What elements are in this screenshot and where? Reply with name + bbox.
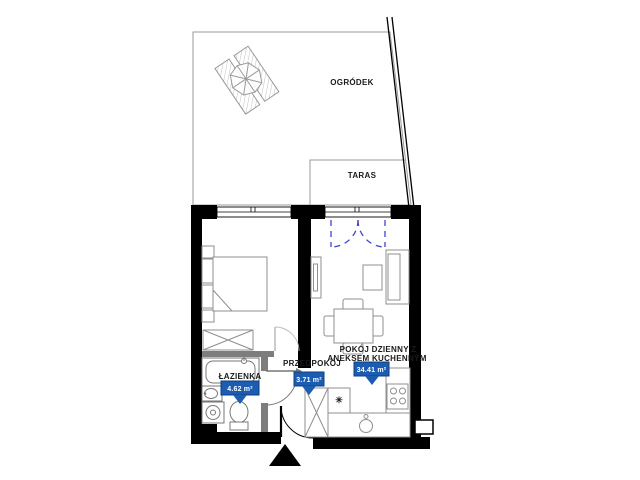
pillow	[202, 259, 213, 283]
bedroom-furniture	[202, 246, 267, 350]
coffee-table	[363, 265, 382, 290]
bedroom-wardrobe	[203, 330, 253, 350]
hallway-wardrobe	[305, 388, 328, 437]
double-bed	[213, 257, 267, 311]
fridge-snowflake-icon: ✳	[335, 395, 343, 405]
dining-table	[334, 309, 373, 343]
washbasin	[202, 386, 222, 401]
bathroom-fixtures	[202, 356, 259, 437]
garden-area: OGRÓDEK TARAS	[193, 17, 414, 208]
wall-right	[409, 205, 421, 449]
installation-shaft	[202, 424, 217, 437]
bathroom-area-value: 4.62 m²	[227, 386, 253, 393]
sun-loungers-with-umbrella	[215, 46, 279, 114]
bedroom-window	[217, 207, 291, 217]
living-room-furniture	[311, 250, 409, 354]
living-room-area-badge: 34.41 m²	[354, 362, 389, 385]
chair	[343, 299, 363, 310]
tv-stand	[311, 257, 321, 298]
nightstand	[202, 310, 214, 322]
living-room-area-value: 34.41 m²	[357, 367, 387, 374]
terrace-outline	[310, 160, 406, 205]
living-room-label-line1: POKÓJ DZIENNY Z	[340, 345, 417, 354]
wall-bottom-right	[313, 437, 430, 449]
toilet	[230, 402, 248, 431]
bathroom-area-badge: 4.62 m²	[221, 381, 259, 404]
garden-label: OGRÓDEK	[330, 78, 373, 87]
bedroom-door	[275, 327, 299, 351]
fridge: ✳	[328, 388, 350, 413]
balcony-door-swing-dashed	[331, 220, 385, 247]
garden-outline	[193, 32, 411, 205]
stove	[387, 384, 408, 409]
entrance-marker-triangle	[269, 444, 301, 466]
terrace-label: TARAS	[348, 171, 377, 180]
hallway-area-value: 3.71 m²	[296, 377, 322, 384]
balcony-door-window	[325, 207, 391, 217]
wall-left	[191, 205, 202, 444]
washing-machine	[202, 402, 224, 423]
boundary-fence-line	[387, 17, 409, 208]
bathroom-label: ŁAZIENKA	[219, 372, 262, 381]
boundary-fence-line	[392, 17, 414, 208]
floor-plan: OGRÓDEK TARAS	[0, 0, 640, 480]
sofa	[386, 250, 409, 304]
chair	[324, 316, 335, 336]
wall-bedroom-living-divider	[298, 205, 311, 368]
floor-plan-canvas: OGRÓDEK TARAS	[0, 0, 640, 480]
nightstand	[202, 246, 214, 258]
exterior-pillar	[415, 420, 433, 434]
chair	[372, 316, 383, 336]
pillow	[202, 285, 213, 308]
